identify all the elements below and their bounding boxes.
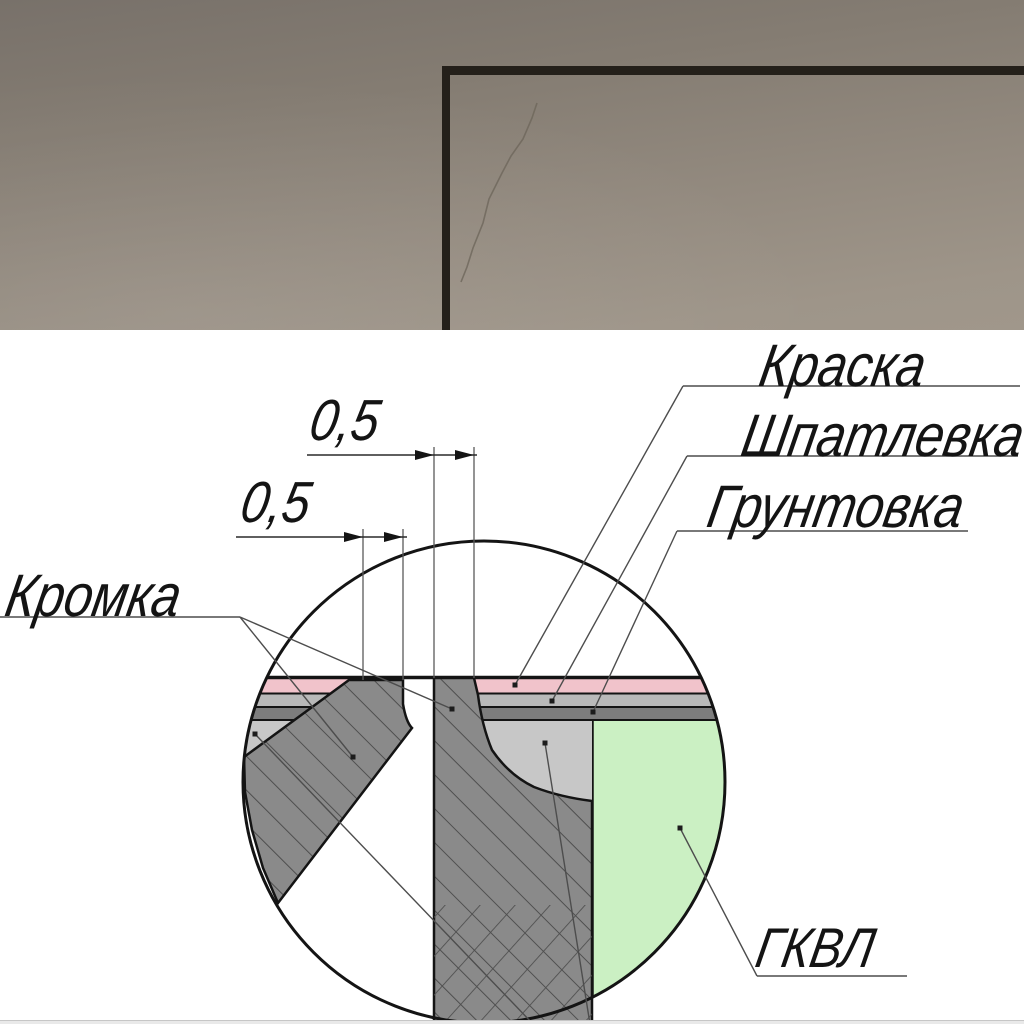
dimension-value-top: 0,5 [306, 392, 385, 450]
label-paint: Краска [755, 336, 931, 396]
dim-arrow [344, 532, 363, 542]
dim-arrow [415, 450, 434, 460]
dimension-value-bottom: 0,5 [237, 474, 316, 532]
screenshot-root: 0,5 0,5 Краска Шпатлевка Грунтовка Кромк… [0, 0, 1024, 1024]
page-bottom-edge [0, 1020, 1024, 1024]
leader-paint [515, 386, 683, 685]
dim-arrow [384, 532, 403, 542]
leader-putty [552, 456, 687, 701]
dim-arrow [455, 450, 474, 460]
label-primer: Грунтовка [703, 477, 969, 537]
label-putty: Шпатлевка [737, 406, 1024, 466]
label-edge: Кромка [1, 566, 186, 626]
primer-layer-right [474, 708, 734, 719]
gkvl-board-area [592, 721, 734, 1021]
putty-layer-right [474, 694, 734, 706]
edge-section-crosshatch [434, 905, 592, 1024]
label-board: ГКВЛ [752, 920, 879, 976]
